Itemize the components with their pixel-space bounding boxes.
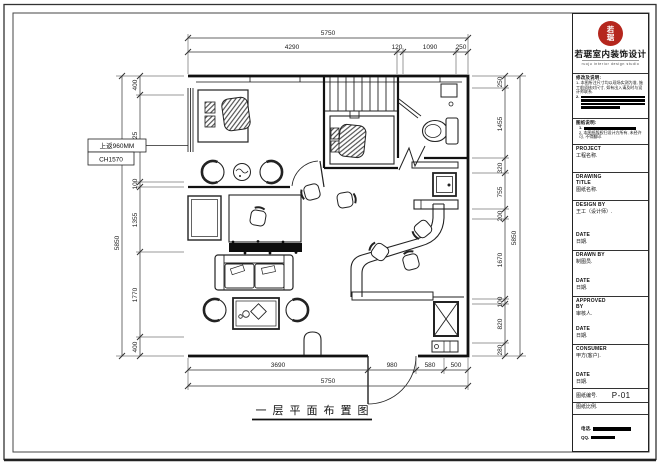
field-label: 图纸编号. (576, 393, 597, 399)
round-table (234, 164, 251, 181)
drawing-number-section: 图纸编号. P-01 (573, 389, 648, 403)
company-stamp-icon: 若 琚 (598, 21, 623, 46)
drawing-number: P-01 (597, 391, 645, 400)
redacted-bar (581, 106, 619, 109)
chair-icon (300, 183, 322, 202)
lounge (188, 195, 321, 355)
design-by-section: DESIGN BY 王工（设计师）. (573, 201, 648, 231)
title-block: 若 琚 若琚室内装饰设计 ruoju interior design studi… (572, 13, 649, 452)
annotation-callout: 上返960MM CH1570 (88, 139, 188, 165)
dim-label: 400 (132, 341, 139, 352)
office-chair-icon (221, 96, 251, 131)
field-value: 王工（设计师）. (576, 209, 645, 215)
office-top-left (198, 90, 282, 183)
date-section: DATE 日期. (573, 231, 648, 251)
dim-label: 280 (497, 344, 504, 355)
note-item: 1- 本图所注尺寸均以现场实测为准, 施工前须核对尺寸, 如有出入请及时与设计师… (576, 81, 645, 95)
dim-label: 120 (392, 44, 403, 51)
dim-label: 100 (497, 296, 504, 307)
counter (412, 162, 458, 168)
dim-label: 400 (132, 79, 139, 90)
chair-icon (336, 191, 357, 209)
dim-label: 580 (425, 362, 436, 369)
redacted-bar (581, 99, 645, 102)
toilet (423, 118, 459, 144)
armchair-icon (286, 299, 308, 321)
dim-label: 500 (451, 362, 462, 369)
sheet-border (4, 5, 656, 461)
shelf (441, 84, 457, 97)
armchair-icon (204, 299, 226, 321)
field-label: DESIGN BY (576, 202, 645, 208)
armchair-icon (260, 161, 282, 183)
reception (300, 183, 464, 352)
field-value: 图纸名称. (576, 187, 645, 193)
field-label: PROJECT (576, 146, 645, 152)
field-value: 审核人. (576, 311, 645, 317)
field-label: DRAWN BY (576, 252, 645, 258)
drawing-caption: 一层平面布置图 (252, 404, 375, 420)
cabinet (188, 196, 221, 240)
field-value: 日期. (576, 239, 645, 245)
field-label: DATE (576, 232, 645, 238)
approved-by-section: APPROVED BY 审核人. (573, 297, 648, 325)
revision-notes-section: 修改及说明: 1- 本图所注尺寸均以现场实测为准, 施工前须核对尺寸, 如有出入… (573, 74, 648, 119)
dim-label: 320 (497, 162, 504, 173)
coffee-table (233, 298, 279, 329)
dim-label: 1670 (497, 252, 504, 267)
company-name: 若琚室内装饰设计 (575, 48, 647, 60)
date-section: DATE 日期. (573, 325, 648, 345)
field-label: DATE (576, 326, 645, 332)
annotation-line2: CH1570 (99, 157, 123, 164)
field-label: TITLE (576, 180, 645, 186)
field-label: DATE (576, 372, 645, 378)
dim-label: 1355 (132, 212, 139, 227)
dim-top-overall: 5750 (321, 30, 336, 37)
office-chair-icon (337, 124, 366, 159)
field-value: 日期. (576, 285, 645, 291)
scale-section: 图纸比例. (573, 403, 648, 415)
stairs (325, 77, 397, 118)
chair-icon (367, 240, 391, 263)
dim-label: 250 (456, 44, 467, 51)
dim-label: 820 (497, 318, 504, 329)
contact-section: 电话. QQ. (573, 415, 648, 451)
stamp-char: 琚 (607, 34, 615, 42)
workstation-center (330, 116, 394, 164)
field-label: BY (576, 304, 645, 310)
dim-label: 1090 (423, 44, 438, 51)
dim-label: 755 (497, 186, 504, 197)
note-item: 2. 本图纸版权归设计方所有, 未经许可, 不得翻印. (576, 131, 645, 140)
field-label: DATE (576, 278, 645, 284)
column (434, 302, 458, 336)
redacted-bar (591, 436, 615, 440)
dim-label: 100 (132, 178, 139, 189)
dim-label: 980 (387, 362, 398, 369)
dim-label: 4290 (285, 44, 300, 51)
drawing-title-section: DRAWING TITLE 图纸名称. (573, 173, 648, 201)
redacted-bar (581, 103, 645, 106)
consumer-section: CONSUMER 甲方(客户). (573, 345, 648, 371)
armchair-icon (202, 161, 224, 183)
chair-icon (401, 250, 420, 272)
field-value: 甲方(客户). (576, 353, 645, 359)
dim-right-overall: 5850 (511, 230, 518, 245)
floor-plan-canvas: 5750 4290 120 1090 250 3690 980 580 500 … (0, 0, 660, 466)
chair-icon (410, 218, 434, 241)
company-tagline: ruoju interior design studio (582, 60, 640, 66)
dim-label: 1770 (132, 287, 139, 302)
dim-label: 200 (497, 210, 504, 221)
drawn-by-section: DRAWN BY 制图员. (573, 251, 648, 277)
redacted-bar (581, 96, 645, 99)
dim-label: 250 (497, 76, 504, 87)
date-section: DATE 日期. (573, 371, 648, 389)
caption-text: 一层平面布置图 (256, 404, 375, 417)
chair-icon (249, 206, 267, 227)
field-value: 日期. (576, 333, 645, 339)
sheet-notes-section: 图纸说明: 1. 2. 本图纸版权归设计方所有, 未经许可, 不得翻印. (573, 119, 648, 145)
sofa (215, 255, 293, 290)
field-value: 工程名称. (576, 153, 645, 159)
project-section: PROJECT 工程名称. (573, 145, 648, 173)
field-label: CONSUMER (576, 346, 645, 352)
field-value: 日期. (576, 379, 645, 385)
date-section: DATE 日期. (573, 277, 648, 297)
phone-label: 电话. (581, 426, 591, 432)
sink (433, 173, 456, 196)
planter (304, 332, 321, 355)
dim-label: 3690 (271, 362, 286, 369)
dim-bottom-overall: 5750 (321, 378, 336, 385)
dim-left-overall: 5850 (114, 235, 121, 250)
redacted-bar (593, 427, 631, 431)
field-value: 制图员. (576, 259, 645, 265)
cad-sheet: { "page": { "caption": "一层平面布置图" }, "pla… (0, 0, 660, 466)
note-number: 2. (576, 95, 579, 100)
bathroom (399, 84, 458, 196)
low-cabinet (432, 341, 458, 352)
logo-section: 若 琚 若琚室内装饰设计 ruoju interior design studi… (573, 14, 648, 74)
qq-label: QQ. (581, 435, 589, 440)
annotation-line1: 上返960MM (100, 141, 135, 150)
field-label: 图纸比例. (576, 404, 645, 410)
dim-label: 1455 (497, 116, 504, 131)
